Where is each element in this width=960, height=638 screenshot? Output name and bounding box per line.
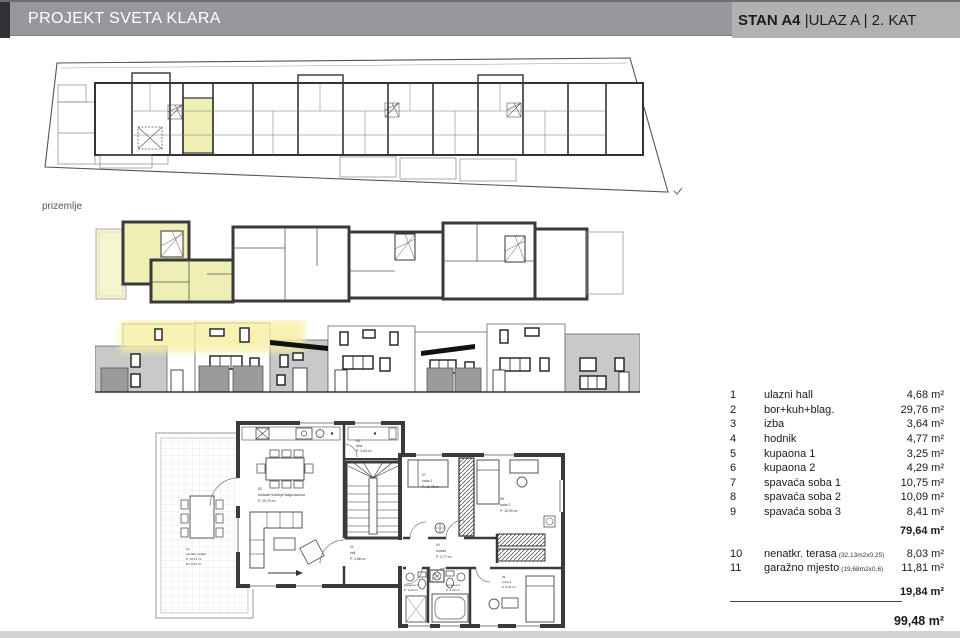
site-plan-drawing	[40, 55, 690, 205]
apartment-plan-drawing: 10 nenatkr. terasa P: 32,13 m² Ps: 8,03 …	[150, 420, 570, 638]
room-row: 6 kupaona 2 4,29 m²	[730, 461, 944, 476]
room-name: izba	[764, 418, 907, 430]
room-number: 1	[730, 389, 764, 401]
room-area: 4,77 m²	[907, 433, 944, 445]
unit-info: STAN A4 |ULAZ A | 2. KAT	[732, 2, 960, 38]
room-number: 11	[730, 562, 764, 574]
extras-block: 10 nenatkr. terasa(32,13m2x0,25) 8,03 m²…	[730, 546, 944, 575]
svg-text:10: 10	[186, 547, 190, 551]
svg-text:04: 04	[436, 543, 440, 547]
extra-row: 11 garažno mjesto(19,68m2x0,6) 11,81 m²	[730, 561, 944, 576]
svg-text:P: 8,41 m²: P: 8,41 m²	[502, 585, 516, 589]
room-area: 10,75 m²	[901, 477, 944, 489]
subtotal-living-area: 79,64 m²	[730, 525, 944, 537]
subtotal-extras-area: 19,84 m²	[730, 586, 944, 598]
header-bar: PROJEKT SVETA KLARA STAN A4 |ULAZ A | 2.…	[0, 0, 960, 36]
room-number: 10	[730, 548, 764, 560]
room-name: nenatkr. terasa(32,13m2x0,25)	[764, 548, 907, 560]
svg-text:soba 1: soba 1	[422, 479, 432, 483]
unit-name: STAN A4	[738, 12, 805, 29]
svg-text:09: 09	[502, 575, 506, 579]
svg-text:kupaona 1: kupaona 1	[404, 583, 418, 587]
page: PROJEKT SVETA KLARA STAN A4 |ULAZ A | 2.…	[0, 0, 960, 638]
svg-text:01: 01	[350, 545, 354, 549]
room-area: 8,03 m²	[907, 548, 944, 560]
staircase	[346, 462, 401, 538]
svg-text:P: 3,25 m²: P: 3,25 m²	[404, 588, 418, 592]
sum-divider	[730, 601, 902, 602]
svg-text:soba 2: soba 2	[500, 503, 510, 507]
svg-text:hall: hall	[350, 551, 356, 555]
svg-text:hodnik: hodnik	[436, 549, 446, 553]
svg-text:kupaona 2: kupaona 2	[446, 583, 460, 587]
extra-row: 10 nenatkr. terasa(32,13m2x0,25) 8,03 m²	[730, 546, 944, 561]
svg-text:03: 03	[356, 439, 360, 443]
room-name: spavaća soba 2	[764, 491, 901, 503]
room-name: bor+kuh+blag.	[764, 404, 901, 416]
room-area: 29,76 m²	[901, 404, 944, 416]
room-row: 4 hodnik 4,77 m²	[730, 432, 944, 447]
room-name: spavaća soba 1	[764, 477, 901, 489]
room-row: 7 spavaća soba 1 10,75 m²	[730, 476, 944, 491]
floor-strip-drawing	[95, 216, 625, 308]
north-mark-icon	[674, 188, 682, 194]
room-area: 3,64 m²	[907, 418, 944, 430]
svg-text:soba 3: soba 3	[502, 580, 511, 584]
room-area: 3,25 m²	[907, 448, 944, 460]
bedroom-wing: 07 soba 1 P: 10,75 m² 08 soba 2 P: 10,09…	[398, 452, 563, 629]
building-outline	[95, 73, 643, 155]
room-row: 5 kupaona 1 3,25 m²	[730, 446, 944, 461]
svg-text:08: 08	[500, 497, 504, 501]
project-title: PROJEKT SVETA KLARA	[28, 10, 221, 28]
svg-text:02: 02	[258, 487, 262, 491]
header-left-edge	[0, 2, 10, 38]
room-name: kupaona 1	[764, 448, 907, 460]
room-number: 8	[730, 491, 764, 503]
room-row: 2 bor+kuh+blag. 29,76 m²	[730, 403, 944, 418]
room-row: 8 spavaća soba 2 10,09 m²	[730, 490, 944, 505]
room-row: 3 izba 3,64 m²	[730, 417, 944, 432]
svg-text:P: 10,09 m²: P: 10,09 m²	[500, 509, 518, 513]
svg-text:nenatkr. terasa: nenatkr. terasa	[186, 552, 206, 556]
svg-text:07: 07	[422, 473, 426, 477]
room-number: 7	[730, 477, 764, 489]
elevation-drawing	[95, 320, 640, 395]
area-note: (32,13m2x0,25)	[839, 552, 885, 559]
room-area: 11,81 m²	[901, 562, 944, 574]
room-number: 9	[730, 506, 764, 518]
svg-text:P: 10,75 m²: P: 10,75 m²	[422, 485, 440, 489]
room-number: 4	[730, 433, 764, 445]
living-block: 02 boravak+kuhinja+blagovaonica P: 29,76…	[210, 420, 403, 589]
room-number: 2	[730, 404, 764, 416]
svg-text:P: 4,68 m²: P: 4,68 m²	[350, 557, 367, 561]
svg-text:P: 29,76 m²: P: 29,76 m²	[258, 499, 276, 503]
room-row: 9 spavaća soba 3 8,41 m²	[730, 505, 944, 520]
room-area: 10,09 m²	[901, 491, 944, 503]
svg-text:P: 4,29 m²: P: 4,29 m²	[446, 588, 460, 592]
room-number: 3	[730, 418, 764, 430]
svg-text:Ps: 8,03 m²: Ps: 8,03 m²	[186, 562, 201, 566]
footer-bar	[0, 631, 960, 638]
highlighted-unit	[183, 98, 213, 153]
svg-text:boravak+kuhinja+blagovaonica: boravak+kuhinja+blagovaonica	[258, 493, 305, 497]
room-name: spavaća soba 3	[764, 506, 907, 518]
svg-text:P: 4,77 m²: P: 4,77 m²	[436, 555, 453, 559]
room-name: hodnik	[764, 433, 907, 445]
unit-entrance-floor: |ULAZ A | 2. KAT	[805, 12, 917, 29]
room-name: garažno mjesto(19,68m2x0,6)	[764, 562, 901, 574]
svg-text:P: 32,13 m²: P: 32,13 m²	[186, 557, 202, 561]
area-note: (19,68m2x0,6)	[841, 566, 883, 573]
total-area: 99,48 m²	[730, 614, 944, 628]
room-area: 4,29 m²	[907, 462, 944, 474]
room-schedule: 1 ulazni hall 4,68 m² 2 bor+kuh+blag. 29…	[730, 388, 944, 628]
room-number: 5	[730, 448, 764, 460]
site-plan-caption: prizemlje	[42, 201, 82, 212]
room-area: 8,41 m²	[907, 506, 944, 518]
room-name: ulazni hall	[764, 389, 907, 401]
room-number: 6	[730, 462, 764, 474]
room-area: 4,68 m²	[907, 389, 944, 401]
svg-text:P: 3,64 m²: P: 3,64 m²	[356, 449, 373, 453]
room-name: kupaona 2	[764, 462, 907, 474]
room-row: 1 ulazni hall 4,68 m²	[730, 388, 944, 403]
svg-text:izba: izba	[356, 444, 362, 448]
